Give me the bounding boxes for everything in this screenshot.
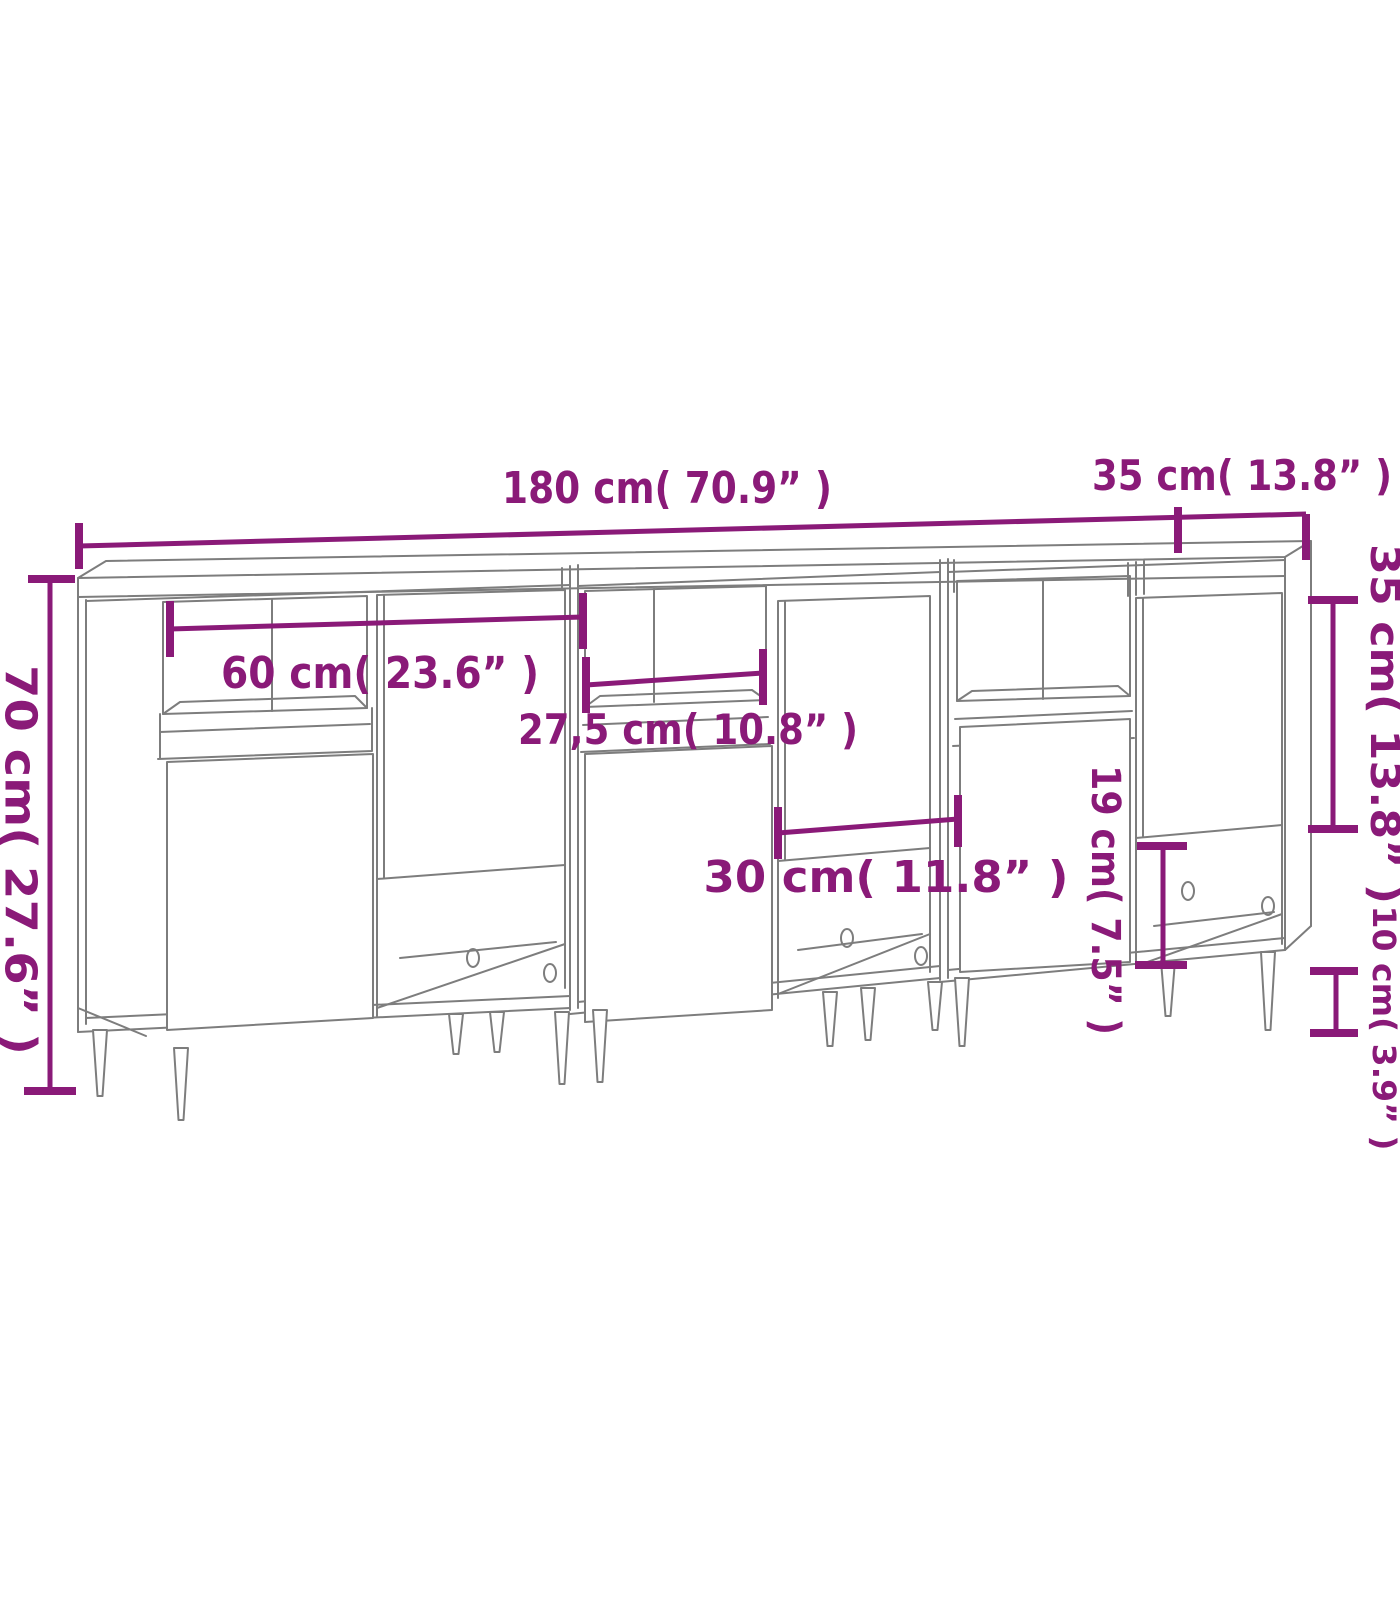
- top-panel: [78, 541, 1311, 578]
- leg: [93, 1030, 107, 1096]
- cable-hole: [544, 964, 556, 982]
- leg: [861, 988, 875, 1040]
- dimension-label-leg-height: 10 cm( 3.9” ): [1365, 906, 1400, 1151]
- open-shelf-frame: [585, 586, 766, 707]
- dimension-total-height: 70 cm( 27.6” ): [0, 579, 76, 1091]
- leg: [490, 1012, 504, 1052]
- leg: [449, 1014, 463, 1054]
- cable-hole: [467, 949, 479, 967]
- leg: [593, 1010, 607, 1082]
- leg: [823, 992, 837, 1046]
- tall-door: [1136, 593, 1282, 838]
- unit-divider-2: [940, 559, 948, 980]
- cable-hole: [915, 947, 927, 965]
- leg: [555, 1012, 569, 1084]
- leg: [928, 982, 942, 1030]
- unit-divider-1: [570, 565, 578, 1010]
- dimension-label-open-compartment-height: 19 cm( 7.5” ): [1082, 765, 1128, 1035]
- dimension-diagram: 180 cm( 70.9” ) 35 cm( 13.8” ) 70 cm( 27…: [0, 0, 1400, 1600]
- dimension-label-total-width: 180 cm( 70.9” ): [502, 463, 832, 514]
- leg: [174, 1048, 188, 1120]
- dimension-line: [79, 514, 1306, 546]
- dimension-label-top-depth: 35 cm( 13.8” ): [1092, 451, 1392, 500]
- top-panel-thickness-edge: [78, 576, 1285, 597]
- dimension-label-side-door-height: 35 cm( 13.8” ): [1361, 544, 1400, 904]
- shelf-front-rail: [158, 708, 372, 759]
- sideboard-middle: [555, 586, 942, 1084]
- leg: [955, 978, 969, 1046]
- dimension-side-door-height: 35 cm( 13.8” ): [1308, 544, 1400, 904]
- dimension-label-door-width: 30 cm( 11.8” ): [704, 852, 1069, 903]
- dimension-label-inner-shelf-width: 27,5 cm( 10.8” ): [518, 705, 858, 754]
- compartment-edges: [377, 865, 565, 1016]
- dimension-label-total-height: 70 cm( 27.6” ): [0, 665, 46, 1055]
- dimension-line: [586, 673, 763, 685]
- compartment-floor: [778, 934, 930, 994]
- lower-door: [167, 754, 373, 1030]
- cable-hole: [1182, 882, 1194, 900]
- dimension-label-open-shelf-width: 60 cm( 23.6” ): [221, 648, 539, 699]
- dimension-leg-height: 10 cm( 3.9” ): [1310, 906, 1400, 1151]
- leg: [1161, 961, 1175, 1016]
- leg: [1261, 952, 1275, 1030]
- right-side-bottom-edge: [1285, 926, 1311, 950]
- diagram-svg: 180 cm( 70.9” ) 35 cm( 13.8” ) 70 cm( 27…: [0, 0, 1400, 1600]
